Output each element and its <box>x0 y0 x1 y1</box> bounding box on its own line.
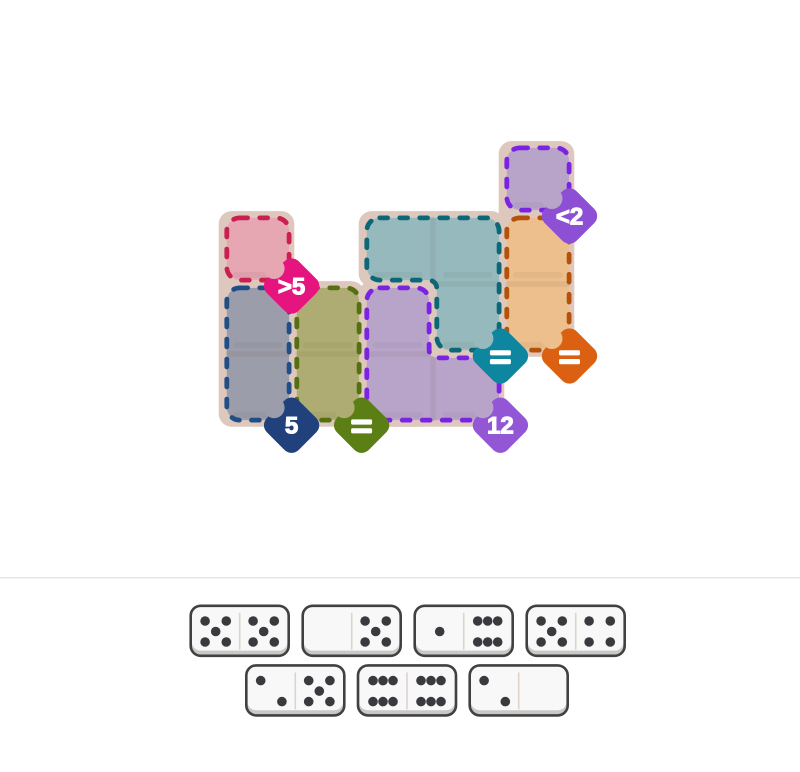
svg-text:12: 12 <box>487 413 514 440</box>
svg-text:5: 5 <box>285 413 298 440</box>
svg-text:<2: <2 <box>556 204 583 231</box>
svg-text:>5: >5 <box>278 274 305 301</box>
